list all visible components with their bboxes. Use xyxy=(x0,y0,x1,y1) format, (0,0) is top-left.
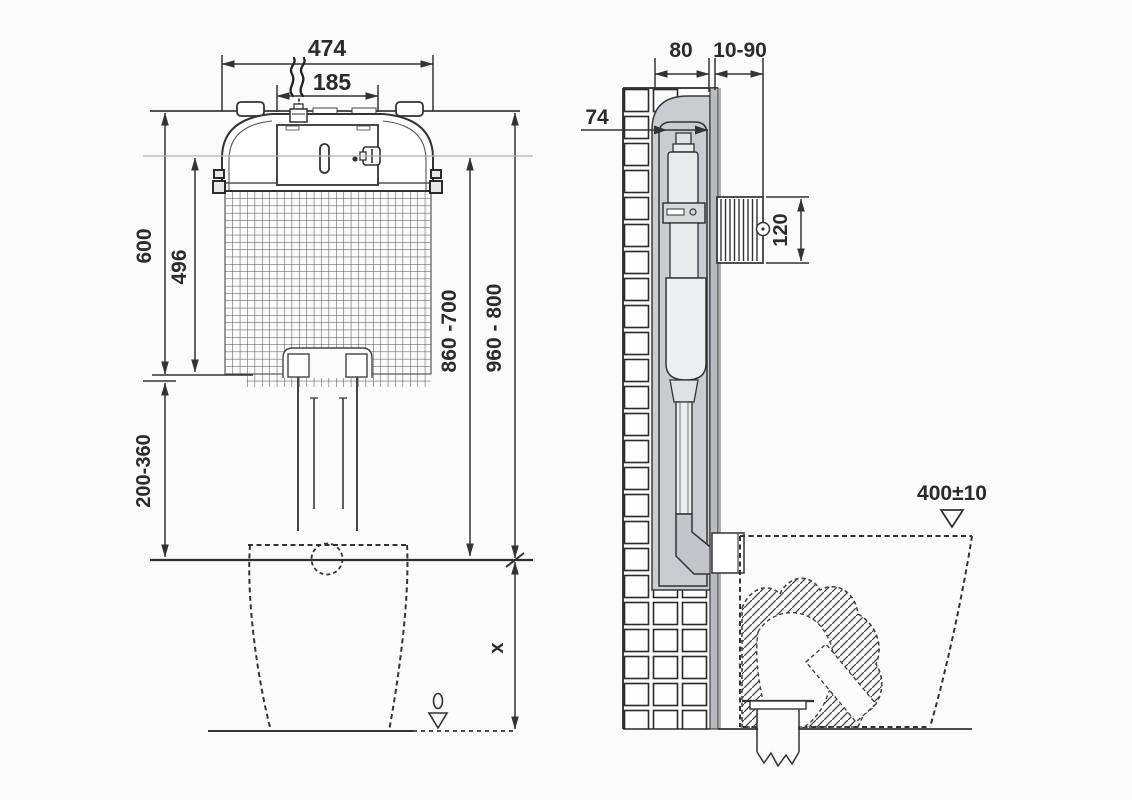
front-view: 474 185 600 496 200-360 xyxy=(133,35,533,731)
height-inner-label: 860 -700 xyxy=(438,290,461,373)
drawing-svg: 474 185 600 496 200-360 xyxy=(0,0,1132,800)
flush-pipe xyxy=(298,377,357,531)
height-496-label: 496 xyxy=(168,249,191,284)
float-switch xyxy=(663,203,705,223)
cistern-mesh-body xyxy=(225,191,431,387)
mount-tab-right xyxy=(396,102,423,116)
technical-drawing: 474 185 600 496 200-360 xyxy=(0,0,1132,800)
height-600-label: 600 xyxy=(133,228,156,263)
plate-slot xyxy=(320,144,329,173)
access-box xyxy=(717,197,770,263)
cistern-depth-label: 74 xyxy=(585,106,609,129)
pipe-adjust-label: 200-360 xyxy=(133,434,155,507)
toilet-bowl-front xyxy=(248,544,408,732)
floor-offset-label: x xyxy=(486,642,508,653)
pipe-boss-right xyxy=(346,354,367,377)
fixing-lug-left xyxy=(213,170,225,193)
level-datum-icon xyxy=(941,510,963,527)
niche-depth-label: 80 xyxy=(669,39,692,62)
dim-niche-depth xyxy=(655,58,709,92)
dim-wall-finish xyxy=(715,58,763,197)
fill-valve-cap xyxy=(676,133,691,144)
fill-valve-body xyxy=(668,152,698,204)
mount-tab-left xyxy=(237,102,264,116)
flush-tube xyxy=(666,278,706,380)
cistern-side xyxy=(659,122,714,586)
total-width-label: 474 xyxy=(308,35,347,61)
inlet-fitting xyxy=(290,109,307,122)
side-view: 80 10-90 74 120 400±10 xyxy=(581,39,987,766)
access-box-height-label: 120 xyxy=(770,213,792,246)
wall-board xyxy=(710,88,718,729)
pipe-boss-left xyxy=(288,354,309,377)
flush-plate-width-label: 185 xyxy=(313,69,352,95)
cistern-shell xyxy=(213,102,442,193)
odor-vent-icon xyxy=(291,58,305,109)
down-pipe xyxy=(676,402,692,514)
wall-finish-label: 10-90 xyxy=(713,39,767,62)
plate-dot xyxy=(352,156,357,161)
dim-floor-offset xyxy=(506,553,524,729)
height-outer-label: 960 - 800 xyxy=(483,284,506,373)
floor-datum-icon xyxy=(429,694,447,729)
bowl-rim-height-label: 400±10 xyxy=(917,482,987,505)
fixing-lug-right xyxy=(430,170,442,193)
